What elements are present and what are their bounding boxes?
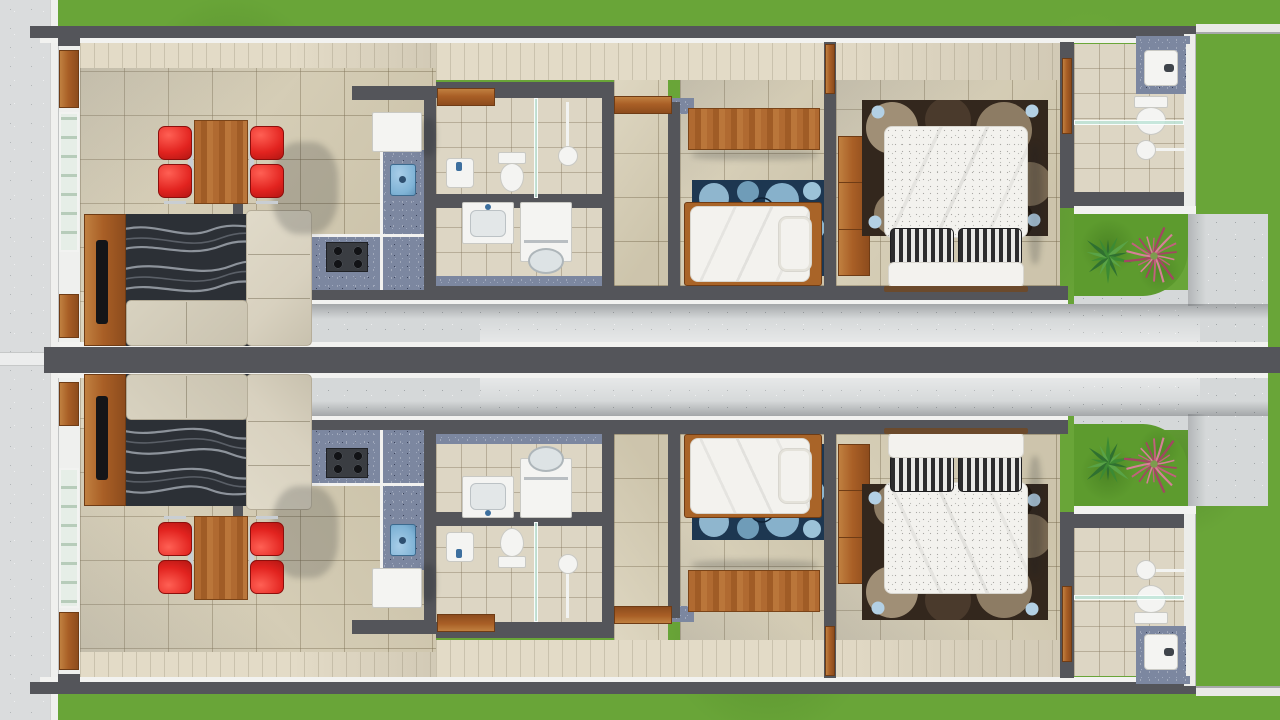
striped-pillow-right: [958, 454, 1022, 492]
top-outer-wall: [30, 682, 1196, 694]
top-wall-face-bedrooms: [436, 43, 1060, 80]
bedrooms-bottom-lining: [614, 416, 1068, 420]
washtub-basin: [470, 210, 506, 237]
sofa-main-seat: [246, 210, 312, 346]
bathroom-door: [437, 614, 495, 632]
vanity-faucet: [1164, 64, 1174, 72]
ensuite-shower-arm: [1154, 148, 1186, 151]
ensuite-shower-head: [1136, 140, 1156, 160]
toilet-bowl: [500, 528, 524, 557]
laundry-basket: [528, 248, 564, 274]
dining-chair-2: [158, 164, 192, 198]
rear-patio: [1188, 378, 1268, 506]
dining-chair-1: [158, 126, 192, 160]
single-bed-pillow: [778, 216, 812, 272]
toilet-tank: [498, 556, 526, 568]
bathroom-glass-partition: [534, 98, 538, 198]
counter-edge-top: [306, 234, 436, 237]
double-bed-sheet: [888, 262, 1024, 288]
dining-table: [194, 120, 248, 204]
ensuite-shower-arm: [1154, 569, 1186, 572]
front-door-upper: [59, 612, 79, 670]
refrigerator: [372, 112, 422, 152]
property-dividing-wall: [44, 360, 1280, 373]
top-wall-face-living: [80, 652, 436, 677]
bedroom-single-door: [825, 626, 835, 676]
dining-table: [194, 516, 248, 600]
dining-chair-4: [250, 522, 284, 556]
property-dividing-wall: [44, 347, 1280, 360]
ensuite-ledge: [1074, 506, 1196, 514]
sofa-main-seat: [246, 374, 312, 510]
counter-edge-left: [380, 150, 383, 290]
house-unit-bottom: [0, 360, 1280, 696]
flat-tv: [96, 396, 108, 480]
sofa-chaise: [126, 300, 248, 346]
flat-tv: [96, 240, 108, 324]
chair-legs-2: [256, 516, 278, 519]
headboard: [884, 428, 1028, 434]
ensuite-toilet-tank: [1134, 612, 1168, 624]
front-window: [59, 112, 79, 252]
front-wall-corner: [58, 26, 80, 46]
ensuite-bottom-wall: [1068, 192, 1184, 206]
laundry-floor: [436, 208, 602, 278]
bathroom-door: [437, 88, 495, 106]
chair-legs-1: [164, 516, 186, 519]
refrigerator: [372, 568, 422, 608]
bathroom-basin-tap: [456, 162, 462, 171]
front-wall-corner: [58, 674, 80, 694]
sofa-seam-2: [248, 298, 310, 299]
kitchen-laundry-divider: [424, 86, 436, 300]
laundry-floor: [436, 442, 602, 512]
rear-patio: [1188, 214, 1268, 342]
patio-under-garden: [1074, 378, 1188, 430]
bedroom-single-left-wall: [668, 434, 680, 618]
bedroom-single-left-wall: [668, 102, 680, 286]
counter-edge-top: [306, 483, 436, 486]
pink-plant-icon: [1116, 218, 1192, 294]
ensuite-ledge: [1074, 206, 1196, 214]
striped-pillow-right: [958, 228, 1022, 266]
shower-stem: [566, 102, 569, 150]
sofa-seam-1: [248, 254, 310, 255]
ensuite-glass-partition: [1074, 120, 1184, 125]
ensuite-glass-partition: [1074, 595, 1184, 600]
vanity-backsplash: [1136, 676, 1190, 684]
double-bed-duvet: [884, 126, 1028, 238]
ensuite-bottom-wall: [1068, 514, 1184, 528]
shower-head: [558, 554, 578, 574]
sofa-chaise-seam: [186, 302, 187, 344]
front-door-upper: [59, 50, 79, 108]
top-outer-wall: [30, 26, 1196, 38]
ensuite-door: [1062, 586, 1072, 662]
dining-chair-4: [250, 164, 284, 198]
chair-legs-2: [256, 201, 278, 204]
dining-chair-3: [250, 560, 284, 594]
washer-control-strip: [524, 477, 568, 480]
chair-legs-1: [164, 201, 186, 204]
laundry-right-wall: [602, 420, 614, 638]
shower-head: [558, 146, 578, 166]
washer-control-strip: [524, 240, 568, 243]
counter-edge-left: [380, 430, 383, 570]
laundry-basket: [528, 446, 564, 472]
floor-plan-render: [0, 0, 1280, 720]
units-root: [0, 0, 1280, 720]
single-bed-pillow: [778, 448, 812, 504]
pink-plant-icon: [1116, 426, 1192, 502]
bathroom-glass-partition: [534, 522, 538, 622]
top-wall-face-living: [80, 43, 436, 68]
bedroom-single-door: [825, 44, 835, 94]
vanity-faucet: [1164, 648, 1174, 656]
striped-pillow-left: [890, 454, 954, 492]
sofa-chaise-seam: [186, 376, 187, 418]
ensuite-door: [1062, 58, 1072, 134]
dining-chair-1: [158, 560, 192, 594]
dining-chair-3: [250, 126, 284, 160]
top-wall-cap: [40, 677, 1190, 682]
washtub-tap: [485, 510, 491, 516]
front-window: [59, 468, 79, 608]
cooktop: [326, 448, 368, 478]
kitchen-faucet: [399, 176, 406, 183]
double-bed-sheet: [888, 432, 1024, 458]
kitchen-laundry-divider: [424, 420, 436, 634]
bedroom-desk: [688, 108, 820, 150]
sofa-chaise: [126, 374, 248, 420]
bedroom-desk: [688, 570, 820, 612]
front-door-lower: [59, 294, 79, 338]
laundry-right-wall: [602, 82, 614, 300]
headboard: [884, 286, 1028, 292]
striped-pillow-left: [890, 228, 954, 266]
double-bed-duvet: [884, 482, 1028, 594]
washtub-basin: [470, 483, 506, 510]
washtub-tap: [485, 204, 491, 210]
sofa-seam-1: [248, 465, 310, 466]
ensuite-shower-head: [1136, 560, 1156, 580]
dining-chair-2: [158, 522, 192, 556]
top-wall-face-bedrooms: [436, 640, 1060, 677]
patio-under-garden: [1074, 290, 1188, 342]
cooktop: [326, 242, 368, 272]
vanity-backsplash: [1136, 36, 1190, 44]
boundary-fence-right: [1196, 686, 1280, 696]
house-unit-top: [0, 24, 1280, 360]
kitchen-faucet: [399, 537, 406, 544]
boundary-fence-right: [1196, 24, 1280, 34]
hallway-door: [614, 96, 672, 114]
laundry-bottom-wall: [436, 420, 614, 434]
sofa-seam-2: [248, 421, 310, 422]
laundry-bottom-wall: [436, 286, 614, 300]
bedrooms-bottom-lining: [614, 300, 1068, 304]
front-door-lower: [59, 382, 79, 426]
bathroom-basin-tap: [456, 549, 462, 558]
shower-stem: [566, 570, 569, 618]
hallway-door: [614, 606, 672, 624]
